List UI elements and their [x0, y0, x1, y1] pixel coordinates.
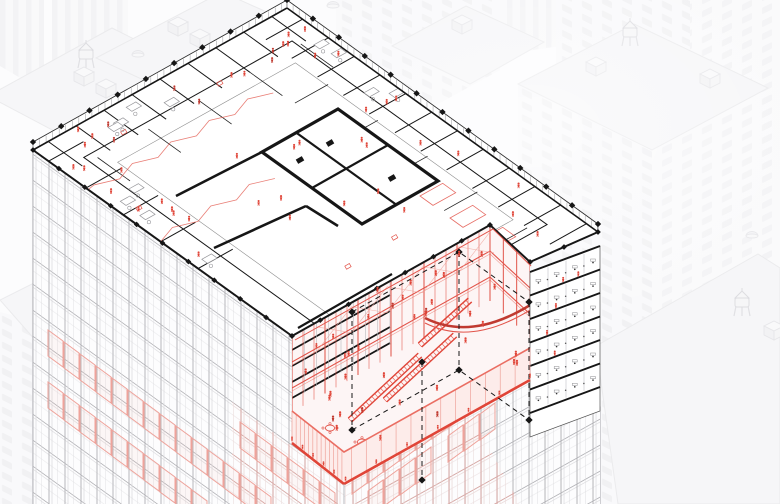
screenshot-root: [0, 0, 780, 504]
section-slab-stack: [530, 246, 600, 437]
axonometric-scene-svg: [0, 0, 780, 504]
